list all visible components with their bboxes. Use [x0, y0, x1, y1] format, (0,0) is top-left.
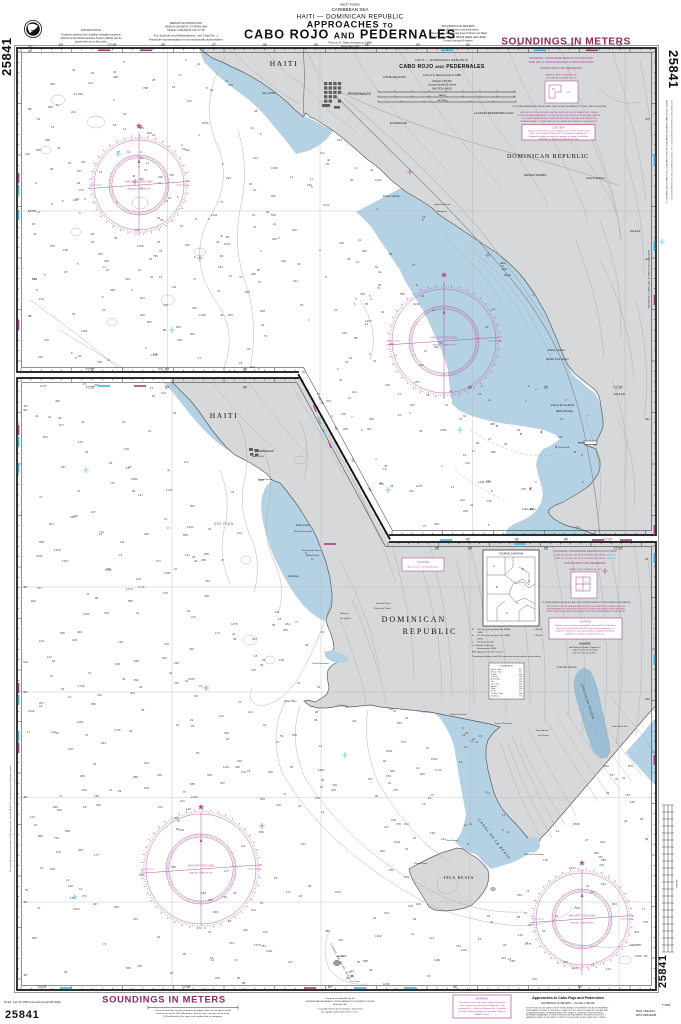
svg-text:189: 189 — [517, 893, 522, 897]
svg-text:(1985): (1985) — [477, 632, 483, 634]
svg-text:736: 736 — [222, 895, 227, 899]
svg-text:RANCHO DAMIRO: RANCHO DAMIRO — [524, 173, 546, 177]
svg-text:designed to facilitate the rep: designed to facilitate the reporting of … — [529, 135, 588, 138]
svg-text:UNIVERSAL TRANSVERSE MERCATOR: UNIVERSAL TRANSVERSE MERCATOR (UTM) GRID — [553, 549, 617, 553]
svg-text:29: 29 — [428, 796, 432, 800]
svg-text:42: 42 — [169, 671, 173, 675]
svg-text:14: 14 — [445, 403, 449, 407]
svg-text:Puerto de La Abros: Puerto de La Abros — [301, 549, 321, 552]
svg-text:137: 137 — [47, 655, 52, 659]
svg-text:16: 16 — [176, 723, 180, 727]
svg-text:542: 542 — [140, 313, 145, 317]
svg-text:10: 10 — [138, 268, 142, 272]
svg-text:54: 54 — [72, 312, 76, 316]
svg-text:63: 63 — [487, 914, 491, 918]
svg-text:267: 267 — [415, 380, 420, 384]
svg-text:168: 168 — [228, 83, 233, 87]
svg-text:50′: 50′ — [59, 43, 64, 47]
svg-text:Salt Pond: Salt Pond — [630, 230, 641, 233]
svg-text:646: 646 — [630, 943, 635, 947]
svg-text:247: 247 — [39, 701, 44, 705]
svg-text:568: 568 — [65, 829, 70, 833]
svg-text:32: 32 — [298, 804, 302, 808]
svg-text:1183: 1183 — [81, 329, 88, 333]
svg-text:12: 12 — [470, 739, 474, 743]
svg-text:Aids/Salvage Facilities, Regio: Aids/Salvage Facilities, Region B is — [569, 646, 600, 649]
svg-text:CAUTION: CAUTION — [579, 620, 591, 624]
svg-text:33: 33 — [113, 70, 117, 74]
svg-text:1131: 1131 — [323, 203, 330, 207]
svg-text:17m: 17m — [519, 695, 523, 697]
svg-text:(9): (9) — [645, 837, 648, 841]
svg-text:ANNUAL CHANGE 8′W: ANNUAL CHANGE 8′W — [189, 872, 213, 875]
svg-text:270: 270 — [393, 788, 398, 792]
svg-text:130: 130 — [73, 198, 78, 202]
svg-text:FOR MILITARY GRID REFERENCE: FOR MILITARY GRID REFERENCE — [564, 561, 606, 565]
svg-text:15: 15 — [464, 745, 468, 749]
svg-text:44: 44 — [379, 481, 383, 485]
svg-text:41′: 41′ — [517, 43, 522, 47]
svg-text:218: 218 — [68, 747, 73, 751]
svg-text:588: 588 — [39, 540, 44, 544]
svg-text:32: 32 — [208, 527, 212, 531]
svg-text:15: 15 — [247, 769, 251, 773]
svg-text:1744: 1744 — [166, 488, 173, 492]
svg-text:19: 19 — [37, 906, 41, 910]
svg-text:211: 211 — [352, 719, 357, 723]
svg-text:21: 21 — [297, 681, 301, 685]
svg-text:1335: 1335 — [440, 428, 447, 432]
svg-text:18°00′: 18°00′ — [28, 209, 37, 213]
svg-text:1180: 1180 — [434, 958, 441, 962]
svg-text:71°20′: 71°20′ — [613, 547, 623, 551]
svg-text:DPS 25841006: DPS 25841006 — [636, 1013, 657, 1017]
svg-text:1624: 1624 — [187, 525, 194, 529]
svg-text:379: 379 — [251, 668, 256, 672]
svg-text:1196: 1196 — [478, 480, 485, 484]
svg-text:Lomas Trocaserro: Lomas Trocaserro — [494, 722, 513, 725]
svg-text:223: 223 — [215, 976, 220, 980]
svg-text:B: B — [496, 585, 498, 589]
svg-text:PEDERNALES: PEDERNALES — [256, 449, 274, 453]
svg-text:117: 117 — [286, 890, 291, 894]
svg-text:116: 116 — [30, 815, 35, 819]
svg-text:SAMPLE GRID SQUARE IN 1M: SAMPLE GRID SQUARE IN 1M — [545, 74, 576, 77]
svg-text:163: 163 — [218, 265, 223, 269]
svg-text:23: 23 — [624, 819, 628, 823]
svg-text:944: 944 — [245, 290, 250, 294]
svg-text:(152 millimeters), this copy i: (152 millimeters), this copy is not cert… — [163, 1015, 223, 1018]
svg-text:62: 62 — [77, 181, 81, 185]
svg-text:248: 248 — [68, 884, 73, 888]
svg-text:CAUTION: CAUTION — [553, 126, 565, 130]
svg-text:123: 123 — [315, 796, 320, 800]
svg-text:(10): (10) — [645, 697, 650, 701]
svg-text:22: 22 — [470, 503, 474, 507]
svg-text:156: 156 — [600, 840, 605, 844]
svg-text:Santa Rosa Taso: Santa Rosa Taso — [612, 725, 629, 728]
svg-text:To ensure that this chart was: To ensure that this chart was printed at… — [155, 1009, 232, 1012]
svg-text:27: 27 — [221, 558, 225, 562]
svg-text:34: 34 — [232, 632, 236, 636]
svg-text:Mangrove: Mangrove — [436, 210, 447, 213]
svg-text:531: 531 — [301, 842, 306, 846]
svg-text:60: 60 — [176, 827, 180, 831]
svg-text:26: 26 — [503, 943, 507, 947]
svg-text:798: 798 — [143, 86, 148, 90]
svg-text:919: 919 — [144, 786, 149, 790]
svg-text:194: 194 — [88, 81, 93, 85]
svg-text:65: 65 — [196, 751, 200, 755]
svg-text:03′: 03′ — [28, 49, 32, 53]
svg-text:(Pointe Trou Jacob): (Pointe Trou Jacob) — [546, 358, 569, 361]
svg-text:MAG VAR 7°15′W (1985): MAG VAR 7°15′W (1985) — [569, 915, 596, 918]
svg-text:52: 52 — [349, 356, 353, 360]
svg-text:159: 159 — [125, 277, 130, 281]
svg-text:80: 80 — [357, 960, 361, 964]
svg-text:156: 156 — [70, 896, 75, 900]
svg-text:130: 130 — [307, 183, 312, 187]
svg-text:13: 13 — [451, 485, 455, 489]
svg-text:1181: 1181 — [77, 720, 84, 724]
svg-text:20: 20 — [247, 347, 251, 351]
svg-text:SAMPLE GRID SQUARE IN 1M x 1M: SAMPLE GRID SQUARE IN 1M x 1M — [569, 568, 601, 571]
svg-text:69: 69 — [170, 971, 174, 975]
svg-text:227: 227 — [93, 902, 98, 906]
svg-text:24: 24 — [122, 420, 126, 424]
svg-text:320: 320 — [283, 628, 288, 632]
svg-text:825: 825 — [260, 797, 265, 801]
svg-text:Facsimile representation is no: Facsimile representation is not necessar… — [149, 37, 223, 41]
svg-text:71: 71 — [103, 942, 107, 946]
svg-text:METERS: METERS — [675, 880, 677, 889]
svg-text:18°: 18° — [28, 45, 33, 49]
svg-text:SCALE 1:100,000 AT LAT 17°45′: SCALE 1:100,000 AT LAT 17°45′ — [167, 28, 205, 32]
svg-text:From U.S. Navy surveys to 1985: From U.S. Navy surveys to 1985 — [423, 73, 461, 77]
svg-text:SOURCE DIAGRAM: SOURCE DIAGRAM — [499, 552, 523, 556]
svg-text:29: 29 — [194, 559, 198, 563]
svg-text:29: 29 — [109, 461, 113, 465]
svg-text:88: 88 — [163, 328, 167, 332]
svg-text:36: 36 — [317, 685, 321, 689]
svg-text:308: 308 — [260, 309, 265, 313]
svg-text:38: 38 — [233, 637, 237, 641]
svg-text:32: 32 — [91, 240, 95, 244]
svg-text:40: 40 — [327, 158, 331, 162]
svg-text:274: 274 — [79, 188, 84, 192]
svg-text:35′: 35′ — [24, 973, 28, 977]
svg-text:Prepared and published by the: Prepared and published by the — [325, 997, 356, 1000]
svg-text:748: 748 — [643, 920, 648, 924]
svg-text:667: 667 — [147, 320, 152, 324]
svg-text:24: 24 — [373, 916, 377, 920]
svg-text:15: 15 — [239, 361, 243, 365]
svg-text:83: 83 — [476, 441, 480, 445]
svg-text:16: 16 — [405, 847, 409, 851]
svg-text:308: 308 — [50, 82, 55, 86]
svg-text:16: 16 — [319, 744, 323, 748]
svg-text:130: 130 — [487, 499, 492, 503]
svg-text:28: 28 — [390, 484, 394, 488]
svg-text:1528: 1528 — [202, 121, 209, 125]
svg-text:15: 15 — [252, 213, 256, 217]
svg-text:501: 501 — [49, 522, 54, 526]
svg-text:25841: 25841 — [666, 50, 681, 89]
svg-text:15: 15 — [180, 224, 184, 228]
svg-text:26: 26 — [78, 354, 82, 358]
svg-text:SOUNDINGS IN METERS — SCALE 1:: SOUNDINGS IN METERS — SCALE 1:100,000 — [541, 1002, 595, 1005]
svg-text:42: 42 — [33, 232, 37, 236]
svg-text:Bethesda, MD: Bethesda, MD — [333, 1003, 347, 1006]
svg-text:448: 448 — [204, 594, 209, 598]
svg-text:59: 59 — [132, 489, 136, 493]
svg-text:60: 60 — [383, 759, 387, 763]
svg-text:Approaches to Cabo Rojo and Pe: Approaches to Cabo Rojo and Pedernales — [532, 996, 604, 1000]
svg-text:1191: 1191 — [223, 765, 230, 769]
svg-text:605: 605 — [147, 131, 152, 135]
svg-text:35′: 35′ — [435, 547, 440, 551]
svg-text:1684: 1684 — [318, 768, 325, 772]
svg-text:13: 13 — [383, 467, 387, 471]
svg-text:1503: 1503 — [431, 757, 438, 761]
svg-text:11: 11 — [348, 396, 351, 400]
svg-text:45′: 45′ — [24, 795, 28, 799]
svg-text:With additions from other sour: With additions from other sources — [472, 650, 503, 653]
svg-text:Cueva del Cabo Beata: Cueva del Cabo Beata — [524, 853, 545, 856]
svg-text:1739: 1739 — [78, 684, 85, 688]
svg-text:19: 19 — [321, 810, 325, 814]
svg-text:52: 52 — [375, 265, 379, 269]
svg-text:769: 769 — [205, 579, 210, 583]
svg-text:62: 62 — [210, 88, 214, 92]
svg-text:1000-METER SQUARE (ID. 18): 1000-METER SQUARE (ID. 18) — [546, 77, 577, 80]
svg-text:42: 42 — [378, 270, 382, 274]
svg-text:151: 151 — [293, 279, 298, 283]
svg-text:15: 15 — [465, 731, 469, 735]
svg-text:12: 12 — [459, 760, 463, 764]
svg-text:77: 77 — [178, 73, 182, 77]
svg-text:1364: 1364 — [365, 319, 372, 323]
svg-text:1208: 1208 — [199, 313, 206, 317]
svg-text:30: 30 — [427, 974, 431, 978]
svg-text:48: 48 — [254, 109, 258, 113]
svg-text:21: 21 — [416, 766, 420, 770]
svg-text:27: 27 — [488, 437, 492, 441]
svg-text:Contour interval 40 meters: Contour interval 40 meters — [443, 39, 473, 42]
svg-text:12: 12 — [398, 392, 402, 396]
svg-text:675: 675 — [50, 244, 55, 248]
svg-text:24: 24 — [86, 592, 90, 596]
svg-text:112: 112 — [219, 714, 224, 718]
svg-text:42′: 42′ — [466, 538, 471, 542]
svg-text:25841: 25841 — [657, 954, 669, 988]
svg-text:225: 225 — [158, 175, 163, 179]
svg-text:HAITI: HAITI — [270, 59, 298, 68]
svg-text:14: 14 — [422, 802, 426, 806]
svg-text:66: 66 — [91, 232, 95, 236]
svg-text:124: 124 — [253, 156, 258, 160]
svg-text:784: 784 — [261, 944, 266, 948]
svg-text:40′: 40′ — [24, 900, 28, 904]
svg-text:2 0: 2 0 — [566, 90, 571, 94]
svg-text:736: 736 — [276, 803, 281, 807]
svg-text:665: 665 — [176, 325, 181, 329]
svg-text:(11): (11) — [645, 417, 650, 421]
svg-text:264: 264 — [285, 622, 290, 626]
svg-text:414: 414 — [251, 908, 256, 912]
svg-text:332: 332 — [192, 306, 197, 310]
svg-text:11: 11 — [146, 161, 149, 165]
svg-text:514: 514 — [601, 882, 606, 886]
svg-text:93: 93 — [220, 254, 224, 258]
svg-text:10: 10 — [398, 413, 402, 417]
svg-text:211: 211 — [275, 610, 280, 614]
svg-text:809: 809 — [213, 910, 218, 914]
svg-text:299: 299 — [251, 272, 256, 276]
svg-text:993: 993 — [32, 936, 37, 940]
svg-text:1375: 1375 — [254, 943, 261, 947]
svg-text:27: 27 — [423, 524, 427, 528]
svg-text:HAITI — DOMINICAN REPUBLIC: HAITI — DOMINICAN REPUBLIC — [415, 58, 469, 62]
svg-text:36: 36 — [93, 762, 97, 766]
svg-text:a pilot is the ones worked by: a pilot is the ones worked by — [572, 649, 597, 652]
svg-text:35: 35 — [504, 442, 508, 446]
svg-text:64: 64 — [517, 428, 521, 432]
svg-text:347: 347 — [220, 781, 225, 785]
svg-text:11: 11 — [74, 92, 77, 96]
svg-text:58: 58 — [272, 623, 276, 627]
svg-text:11: 11 — [488, 398, 491, 402]
svg-text:270: 270 — [163, 591, 168, 595]
svg-text:110: 110 — [136, 577, 141, 581]
svg-text:348: 348 — [45, 138, 50, 142]
svg-text:EL MANGLAR: EL MANGLAR — [390, 121, 407, 125]
svg-text:191: 191 — [185, 553, 190, 557]
svg-text:836: 836 — [259, 830, 264, 834]
svg-text:33: 33 — [321, 630, 325, 634]
svg-text:C: C — [506, 611, 508, 615]
svg-text:74: 74 — [85, 733, 89, 737]
svg-text:865: 865 — [126, 966, 131, 970]
svg-text:11: 11 — [103, 265, 106, 269]
svg-text:1651: 1651 — [386, 749, 393, 753]
svg-text:607: 607 — [410, 403, 415, 407]
svg-text:412: 412 — [460, 498, 465, 502]
svg-text:482: 482 — [362, 249, 367, 253]
svg-text:161: 161 — [352, 390, 357, 394]
svg-text:35: 35 — [58, 416, 62, 420]
svg-text:501: 501 — [43, 435, 48, 439]
svg-text:144: 144 — [39, 639, 44, 643]
svg-text:POSITIONS ARE REFERRED TO THE: POSITIONS ARE REFERRED TO THE WORLD GEOD… — [518, 114, 601, 117]
svg-text:57: 57 — [524, 911, 528, 915]
svg-text:30′: 30′ — [468, 547, 473, 551]
svg-text:403: 403 — [634, 930, 639, 934]
svg-text:48: 48 — [347, 257, 351, 261]
svg-text:35: 35 — [141, 708, 145, 712]
svg-text:738: 738 — [97, 360, 102, 364]
svg-text:23: 23 — [173, 411, 177, 415]
svg-text:476: 476 — [174, 681, 179, 685]
svg-text:UNCORRECTED SOUNDINGS SHOWN TH: UNCORRECTED SOUNDINGS SHOWN THUS: 1234 C… — [670, 100, 672, 200]
svg-text:117: 117 — [184, 460, 189, 464]
svg-text:Piedra del Checo: Piedra del Checo — [373, 607, 392, 610]
svg-text:848: 848 — [134, 659, 139, 663]
svg-text:PEDERNALES: PEDERNALES — [348, 92, 372, 96]
svg-text:73: 73 — [526, 889, 530, 893]
svg-text:48: 48 — [315, 710, 319, 714]
svg-text:18: 18 — [113, 123, 117, 127]
svg-text:12: 12 — [351, 969, 355, 973]
svg-text:© Copyright 1995 by the United: © Copyright 1995 by the United States Go… — [317, 1008, 363, 1011]
svg-text:65: 65 — [326, 162, 330, 166]
svg-text:420: 420 — [23, 660, 28, 664]
svg-text:71°20′: 71°20′ — [613, 386, 623, 390]
svg-text:Imperdrant Pond: Imperdrant Pond — [433, 203, 451, 206]
svg-text:11: 11 — [507, 830, 510, 834]
svg-text:1085: 1085 — [635, 954, 642, 958]
svg-text:15: 15 — [478, 392, 482, 396]
svg-text:67: 67 — [258, 280, 262, 284]
svg-text:14: 14 — [197, 62, 201, 66]
svg-text:77: 77 — [59, 794, 63, 798]
svg-text:997: 997 — [252, 637, 257, 641]
svg-text:25: 25 — [157, 240, 161, 244]
svg-text:423: 423 — [250, 365, 255, 369]
svg-text:15: 15 — [478, 937, 482, 941]
svg-text:115: 115 — [163, 303, 168, 307]
svg-text:1739: 1739 — [114, 728, 121, 732]
svg-text:Punta de Cuevi: Punta de Cuevi — [375, 602, 391, 605]
svg-text:SOUNDINGS IN METERS: SOUNDINGS IN METERS — [102, 994, 226, 1005]
svg-text:CAUTION: CAUTION — [417, 560, 429, 564]
svg-text:1175: 1175 — [416, 484, 423, 488]
svg-text:las Aguilas: las Aguilas — [340, 617, 351, 620]
svg-text:HEIGHTS IN METERS ABOVE MEAN S: HEIGHTS IN METERS ABOVE MEAN SEA LEVEL — [430, 36, 487, 39]
svg-text:1350: 1350 — [83, 612, 90, 616]
svg-text:GRID NOTE: THE UTM GRID MAY BE: GRID NOTE: THE UTM GRID MAY BE USED WITH… — [520, 111, 598, 114]
svg-text:32: 32 — [381, 310, 385, 314]
svg-text:FOR MILITARY GRID REFERENCE: FOR MILITARY GRID REFERENCE — [540, 66, 582, 70]
svg-text:reduced to the approximate lev: reduced to the approximate level of Mean… — [429, 32, 488, 35]
svg-text:SCALE 1:36,000: SCALE 1:36,000 — [432, 79, 452, 83]
svg-text:19: 19 — [136, 611, 140, 615]
svg-text:124: 124 — [606, 967, 611, 971]
svg-text:198: 198 — [63, 248, 68, 252]
svg-text:11: 11 — [487, 791, 490, 795]
svg-text:1175: 1175 — [40, 384, 47, 388]
svg-text:TO OBTAIN NUMERICAL VALUES ADD: TO OBTAIN NUMERICAL VALUES ADD THE FIGUR… — [512, 105, 607, 108]
svg-text:227: 227 — [288, 960, 293, 964]
svg-text:TO OBTAIN NUMERICAL VALUES, AD: TO OBTAIN NUMERICAL VALUES, ADD THE FIGU… — [542, 601, 632, 604]
svg-text:1772: 1772 — [126, 587, 133, 591]
svg-text:186: 186 — [96, 803, 101, 807]
svg-text:228: 228 — [174, 661, 179, 665]
svg-text:11: 11 — [424, 349, 427, 353]
svg-text:39′: 39′ — [618, 43, 623, 47]
svg-text:114: 114 — [241, 770, 246, 774]
svg-text:596: 596 — [78, 92, 83, 96]
svg-text:81: 81 — [50, 674, 54, 678]
svg-text:735: 735 — [396, 822, 401, 826]
svg-text:269: 269 — [463, 509, 468, 513]
svg-text:No copyright claimed under Tit: No copyright claimed under Title 17 U.S.… — [321, 1011, 359, 1014]
svg-text:44: 44 — [81, 420, 85, 424]
svg-text:80: 80 — [257, 268, 261, 272]
svg-text:10: 10 — [560, 417, 564, 421]
svg-text:365: 365 — [171, 865, 176, 869]
svg-text:71°55′: 71°55′ — [85, 386, 95, 390]
